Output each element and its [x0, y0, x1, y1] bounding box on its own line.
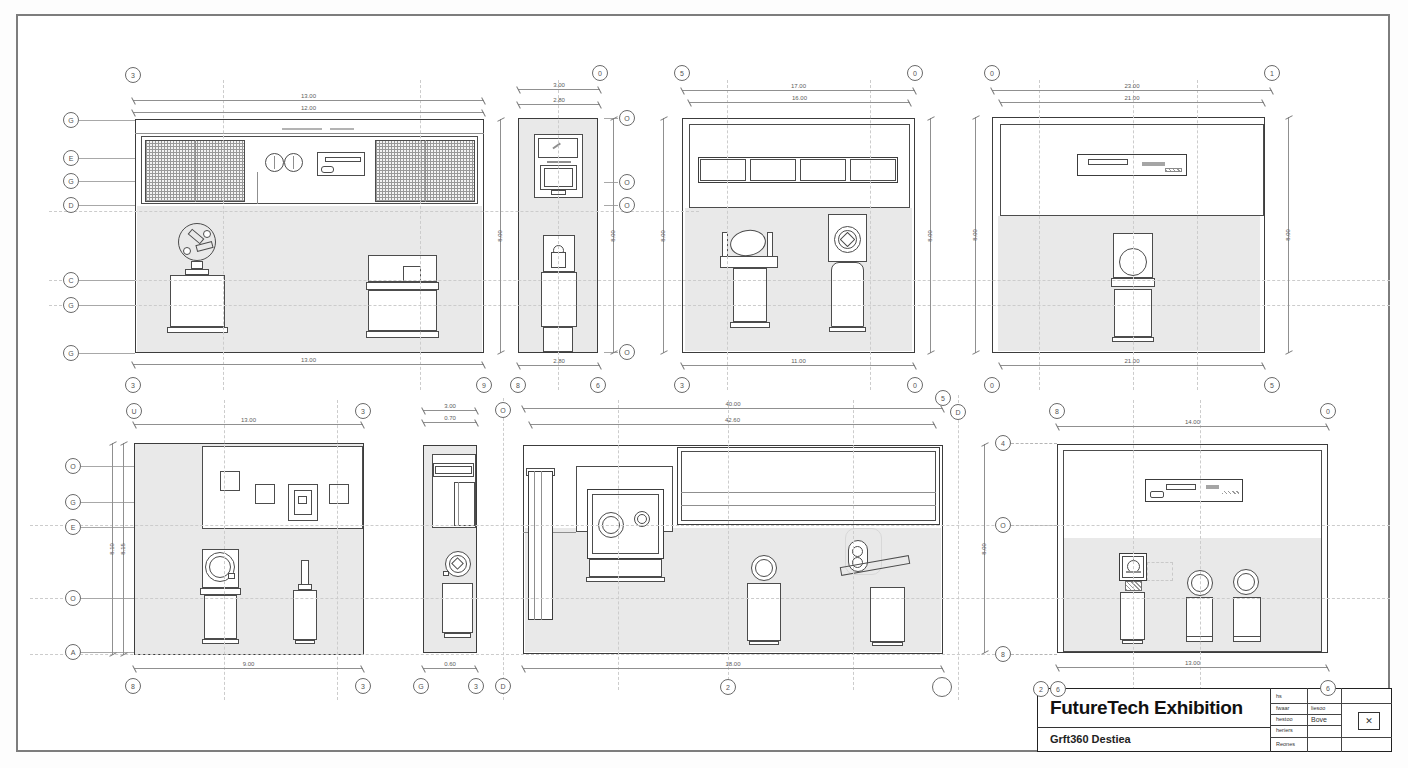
- grid-bubble: D: [495, 678, 511, 694]
- grid-bubble: 3: [674, 377, 690, 393]
- grid-bubble-label: 5: [680, 70, 684, 77]
- e5-frame-2: [255, 484, 275, 504]
- grid-bubble: 6: [590, 377, 606, 393]
- grid-bubble-label: 3: [361, 683, 365, 690]
- grid-bubble-label: G: [68, 117, 73, 124]
- leader: [1011, 443, 1057, 444]
- grid-bubble: G: [63, 173, 79, 189]
- dimension-label: 8.00: [660, 230, 666, 242]
- dimension-label: 40.00: [725, 401, 740, 407]
- dimension: 13.00: [1057, 667, 1328, 668]
- grid-bubble: O: [65, 458, 81, 474]
- dimension-label: 3.00: [444, 403, 456, 409]
- vent-dial-cross: [274, 156, 275, 169]
- grid-bubble-label: 3: [131, 382, 135, 389]
- grid-bubble: 3: [125, 67, 141, 83]
- grid-bubble: 0: [984, 377, 1000, 393]
- dimension-vertical: 8.00: [984, 444, 985, 653]
- e6-cabinet: [442, 583, 473, 633]
- leader: [81, 502, 134, 503]
- dimension-label: 14.00: [1185, 419, 1200, 425]
- grid-bubble: C: [63, 272, 79, 288]
- dimension-label: 13.00: [1185, 660, 1200, 666]
- kiosk-cabinet: [368, 290, 437, 331]
- grid-bubble-empty: [932, 677, 952, 697]
- e3-platform: [720, 256, 778, 268]
- dimension-label: 13.00: [301, 93, 316, 99]
- dimension: 18.00: [523, 668, 943, 669]
- dimension-label: 2.80: [553, 358, 565, 364]
- bottle-neck: [301, 560, 309, 585]
- grid-bubble: 6: [1050, 681, 1066, 697]
- gridline: [49, 211, 699, 212]
- e7-wide-band-inner: [681, 451, 936, 521]
- dimension-label: 8.15: [120, 543, 126, 555]
- dimension: 21.00: [1000, 102, 1264, 103]
- grid-bubble: 0: [984, 65, 1000, 81]
- title-block-divider-h: [1037, 727, 1270, 728]
- robot-pedestal-base: [167, 327, 228, 333]
- kiosk-counter-band: [366, 282, 439, 290]
- grid-bubble: 1: [1264, 65, 1280, 81]
- grid-bubble: 3: [355, 403, 371, 419]
- dimension-label: 0.70: [444, 415, 456, 421]
- grid-bubble: 2: [1033, 681, 1049, 697]
- grid-bubble-label: U: [131, 408, 136, 415]
- grid-bubble: 3: [125, 377, 141, 393]
- leader: [1011, 654, 1057, 655]
- tb-row-line3: [1270, 725, 1341, 726]
- tb-row-line1: [1270, 703, 1392, 704]
- leader: [81, 598, 134, 599]
- grid-bubble: D: [63, 197, 79, 213]
- dimension-label: 8.00: [972, 229, 978, 241]
- grid-bubble-label: 5: [1270, 382, 1274, 389]
- grid-bubble-label: O: [624, 202, 629, 209]
- e8-ghost-box: [1147, 562, 1173, 581]
- gridline: [49, 305, 1390, 306]
- e5-counter-band: [200, 588, 241, 595]
- e7-cabinet-right: [870, 587, 905, 642]
- e6-sign-bar-inner: [435, 466, 472, 474]
- grid-bubble-label: 0: [990, 70, 994, 77]
- grid-bubble-label: D: [68, 202, 73, 209]
- e6-ring-nub: [443, 571, 449, 576]
- centerline: [728, 400, 729, 685]
- dimension: 2.80: [518, 104, 600, 105]
- dimension-label: 18.00: [725, 661, 740, 667]
- grid-bubble: 5: [935, 390, 951, 406]
- e5-frame-1: [220, 471, 240, 491]
- grid-bubble: 0: [1320, 403, 1336, 419]
- tb-field: Reones: [1276, 742, 1295, 748]
- gridline: [30, 598, 1390, 599]
- e3-base-left: [730, 322, 770, 328]
- dimension: 40.00: [523, 408, 943, 409]
- mesh-right-divider: [425, 140, 426, 202]
- grid-bubble-label: 8: [1001, 651, 1005, 658]
- tb-col-line2: [1341, 688, 1342, 752]
- grid-bubble-label: O: [1000, 522, 1005, 529]
- dimension-vertical: 8.00: [663, 118, 664, 353]
- e7-vitrine-base: [586, 577, 665, 582]
- tb-field: heriers: [1276, 728, 1293, 734]
- dimension-label: 21.00: [1124, 358, 1139, 364]
- grid-bubble-label: 0: [990, 382, 994, 389]
- centerline: [337, 400, 338, 700]
- grid-bubble: G: [63, 345, 79, 361]
- grid-bubble: 8: [995, 646, 1011, 662]
- dimension-vertical: 8.00: [613, 118, 614, 353]
- grid-bubble-label: 0: [913, 382, 917, 389]
- grid-bubble: G: [413, 678, 429, 694]
- dimension-label: 11.00: [791, 358, 806, 364]
- camera-notch: [228, 573, 235, 579]
- dimension-vertical: 8.15: [123, 443, 124, 655]
- e8-console-microtext: [1222, 491, 1239, 494]
- grid-bubble-label: 0: [1326, 408, 1330, 415]
- grid-bubble-label: O: [624, 179, 629, 186]
- dimension-label: 16.00: [792, 95, 807, 101]
- grid-bubble: E: [63, 150, 79, 166]
- control-panel-slot: [325, 157, 361, 162]
- gridline: [30, 654, 1005, 655]
- grid-bubble-label: 0: [913, 70, 917, 77]
- grid-bubble-label: 1: [1270, 70, 1274, 77]
- grid-bubble-label: G: [70, 499, 75, 506]
- e5-frame-3-glyph: [298, 496, 307, 504]
- dimension: 11.00: [682, 365, 915, 366]
- grid-bubble-label: G: [68, 350, 73, 357]
- grid-bubble: 8: [125, 678, 141, 694]
- dimension-vertical: 8.00: [975, 117, 976, 353]
- e8-ring-right-inner: [1237, 573, 1255, 591]
- grid-bubble: 6: [1320, 680, 1336, 696]
- kiosk-base: [366, 331, 439, 338]
- tb-field: hs: [1276, 694, 1282, 700]
- e4-console-slot: [1088, 159, 1128, 165]
- e8-console-bar: [1206, 485, 1219, 489]
- sheet-title: FutureTech Exhibition: [1050, 697, 1243, 719]
- grid-bubble-label: O: [624, 349, 629, 356]
- dimension: 3.00: [423, 410, 477, 411]
- robot-arm-joint2: [203, 230, 211, 238]
- grid-bubble-label: O: [70, 595, 75, 602]
- leader: [79, 181, 135, 182]
- annotation-micro-text2: [330, 128, 354, 130]
- centerline: [727, 80, 728, 390]
- dimension-label: 8.00: [981, 543, 987, 555]
- control-panel-chip: [321, 166, 334, 173]
- dimension-label: 23.00: [1124, 83, 1139, 89]
- centerline: [223, 80, 224, 390]
- grid-bubble: 5: [1264, 377, 1280, 393]
- dimension: 16.00: [689, 102, 910, 103]
- grid-bubble-label: 8: [516, 382, 520, 389]
- dimension: 3.00: [518, 89, 600, 90]
- tb-row-line2: [1270, 714, 1341, 715]
- e2-shelf-line: [547, 161, 571, 163]
- dimension-label: 12.00: [301, 105, 316, 111]
- dimension-vertical: 8.00: [500, 119, 501, 353]
- grid-bubble: O: [619, 174, 635, 190]
- e3-base-right: [829, 327, 866, 332]
- grid-bubble-label: G: [418, 683, 423, 690]
- centerline: [853, 400, 854, 690]
- centerline: [1039, 80, 1040, 390]
- e3-cabinet-right: [831, 262, 864, 327]
- vent-dial2-cross: [293, 156, 294, 169]
- dimension-vertical: 8.10: [112, 443, 113, 655]
- centerline: [420, 80, 421, 390]
- sheet-subtitle: Grft360 Destiea: [1050, 733, 1131, 745]
- grid-bubble: 0: [907, 377, 923, 393]
- e3-window-2: [750, 159, 796, 181]
- grid-bubble: 0: [592, 65, 608, 81]
- e8-cabinet-right: [1233, 597, 1261, 641]
- grid-bubble-label: D: [500, 683, 505, 690]
- grid-bubble: 8: [1049, 403, 1065, 419]
- dimension-label: 42.60: [725, 417, 740, 423]
- centerline: [558, 80, 559, 390]
- dimension-label: 21.00: [1124, 95, 1139, 101]
- grid-bubble-label: 3: [361, 408, 365, 415]
- centerline: [618, 400, 619, 690]
- grid-bubble-label: G: [68, 178, 73, 185]
- centerline: [1133, 80, 1134, 390]
- tb-row-line4: [1270, 737, 1392, 738]
- leader: [604, 205, 618, 206]
- e8-console-slot: [1166, 484, 1196, 490]
- grid-bubble-label: D: [955, 409, 960, 416]
- e7-ring-inner: [755, 559, 773, 577]
- stamp-box: ✕: [1358, 712, 1380, 730]
- e5-base: [202, 639, 239, 644]
- leader: [79, 205, 135, 206]
- dimension: 14.00: [1057, 426, 1328, 427]
- gridline: [30, 525, 1390, 526]
- grid-bubble: G: [63, 112, 79, 128]
- robot-pedestal-neck: [191, 261, 203, 269]
- e3-egg-post-right: [767, 232, 773, 258]
- tb-field: Bove: [1311, 716, 1327, 723]
- grid-bubble-label: O: [500, 407, 505, 414]
- grid-bubble: O: [495, 402, 511, 418]
- tb-field: fwaar: [1276, 706, 1289, 712]
- e7-cabinet-mid: [747, 583, 781, 641]
- title-block-divider-v: [1270, 688, 1271, 752]
- e3-window-4: [850, 159, 896, 181]
- leader: [81, 527, 134, 528]
- grid-bubble: O: [65, 590, 81, 606]
- grid-bubble: D: [950, 404, 966, 420]
- centerline: [870, 80, 871, 390]
- dimension-label: 8.00: [610, 230, 616, 242]
- grid-bubble-label: E: [69, 155, 74, 162]
- e3-window-1: [700, 159, 746, 181]
- grid-bubble: 0: [907, 65, 923, 81]
- grid-bubble-label: 0: [598, 70, 602, 77]
- mesh-left-divider: [195, 140, 196, 202]
- grid-bubble-label: G: [68, 302, 73, 309]
- dimension: 23.00: [992, 90, 1272, 91]
- dimension: 17.00: [682, 90, 915, 91]
- tb-col-line1: [1307, 688, 1308, 752]
- grid-bubble: 2: [720, 679, 736, 695]
- grid-bubble: U: [126, 403, 142, 419]
- dimension-label: 8.00: [497, 230, 503, 242]
- elevation-1-fascia-line: [135, 133, 484, 134]
- leader: [81, 466, 134, 467]
- grid-bubble-label: C: [68, 277, 73, 284]
- grid-bubble-label: 9: [482, 382, 486, 389]
- leader: [79, 353, 135, 354]
- grid-bubble-label: 3: [680, 382, 684, 389]
- dimension-vertical: 8.00: [1288, 117, 1289, 353]
- dimension-label: 3.00: [553, 82, 565, 88]
- e5-cabinet: [204, 595, 237, 639]
- e7-base-mid: [749, 641, 779, 645]
- dimension: 9.00: [134, 668, 363, 669]
- robot-arm-joint1: [183, 247, 191, 255]
- grid-bubble-label: A: [71, 649, 76, 656]
- grid-bubble-label: 2: [726, 684, 730, 691]
- grid-bubble: 8: [510, 377, 526, 393]
- tb-field: liesoo: [1311, 706, 1325, 712]
- grid-bubble: A: [65, 644, 81, 660]
- grid-bubble: G: [65, 494, 81, 510]
- dial-drop-line: [257, 172, 258, 204]
- robot-pedestal: [170, 275, 225, 327]
- e4-console-sign: [1077, 154, 1187, 176]
- dimension: 12.00: [133, 112, 484, 113]
- e4-console-hatch: [1165, 168, 1182, 172]
- grid-bubble-label: 4: [1001, 440, 1005, 447]
- grid-bubble-label: 3: [474, 683, 478, 690]
- dimension: 0.60: [423, 668, 477, 669]
- e7-vitrine-stand: [589, 559, 662, 577]
- e3-cabinet-left: [733, 268, 767, 322]
- dimension: 42.60: [530, 424, 935, 425]
- grid-bubble: O: [619, 344, 635, 360]
- annotation-micro-text: [282, 128, 322, 130]
- grid-bubble-label: 6: [1326, 685, 1330, 692]
- e7-artifact-small-inner: [637, 514, 647, 524]
- e7-base-right: [872, 642, 903, 646]
- dimension-label: 17.00: [791, 83, 806, 89]
- dimension-label: 9.00: [243, 661, 255, 667]
- dimension: 21.00: [1000, 365, 1264, 366]
- e8-base-right: [1233, 636, 1261, 642]
- grid-bubble-label: 6: [596, 382, 600, 389]
- e7-band-line1: [681, 492, 936, 493]
- grid-bubble-label: 8: [131, 683, 135, 690]
- grid-bubble-label: E: [71, 524, 76, 531]
- leader: [604, 182, 618, 183]
- grid-bubble-label: 2: [1039, 686, 1043, 693]
- dimension: 13.00: [133, 364, 484, 365]
- dimension: 13.00: [134, 424, 363, 425]
- grid-bubble: E: [65, 519, 81, 535]
- tb-field: hestoo: [1276, 717, 1293, 723]
- e6-side-panel-line: [458, 482, 459, 526]
- grid-bubble-label: O: [624, 115, 629, 122]
- dimension-label: 8.00: [1285, 229, 1291, 241]
- dimension: 13.00: [133, 100, 484, 101]
- dimension-label: 8.00: [927, 230, 933, 242]
- dimension-label: 2.80: [553, 97, 565, 103]
- e4-console-bar: [1142, 162, 1165, 166]
- dimension: 0.70: [423, 422, 477, 423]
- e8-console-chip: [1150, 491, 1164, 498]
- e3-window-3: [800, 159, 846, 181]
- grid-bubble: G: [63, 297, 79, 313]
- grid-bubble: 4: [995, 435, 1011, 451]
- bottle-base: [295, 640, 315, 644]
- centerline: [224, 400, 225, 700]
- grid-bubble: O: [619, 197, 635, 213]
- gridline: [49, 280, 1390, 281]
- grid-bubble: O: [995, 517, 1011, 533]
- dimension-label: 0.60: [444, 661, 456, 667]
- centerline: [1200, 400, 1201, 690]
- leader: [79, 158, 135, 159]
- grid-bubble-label: 8: [1055, 408, 1059, 415]
- leader: [79, 280, 135, 281]
- dimension-vertical: 8.00: [930, 118, 931, 353]
- e7-band-line2: [681, 505, 936, 506]
- grid-bubble: 5: [674, 65, 690, 81]
- grid-bubble-label: 5: [941, 395, 945, 402]
- grid-bubble-label: 3: [131, 72, 135, 79]
- drawing-sheet: 13.00 12.00 13.00 3.00 2.80 2.80 17.00 1…: [0, 0, 1408, 768]
- e6-base: [444, 633, 471, 638]
- grid-bubble-label: O: [70, 463, 75, 470]
- dimension: 2.80: [518, 365, 600, 366]
- grid-bubble: 3: [355, 678, 371, 694]
- centerline: [1197, 80, 1198, 390]
- centerline: [1133, 400, 1134, 690]
- dimension-label: 13.00: [241, 417, 256, 423]
- grid-bubble-label: 6: [1056, 686, 1060, 693]
- leader: [1011, 525, 1057, 526]
- grid-bubble: 9: [476, 377, 492, 393]
- leader: [79, 305, 135, 306]
- stamp-x-icon: ✕: [1365, 717, 1373, 726]
- dimension-label: 13.00: [301, 357, 316, 363]
- grid-bubble: 3: [468, 678, 484, 694]
- dimension-label: 8.10: [109, 543, 115, 555]
- e5-frame-4: [329, 484, 349, 504]
- leader: [79, 120, 135, 121]
- grid-bubble: O: [619, 110, 635, 126]
